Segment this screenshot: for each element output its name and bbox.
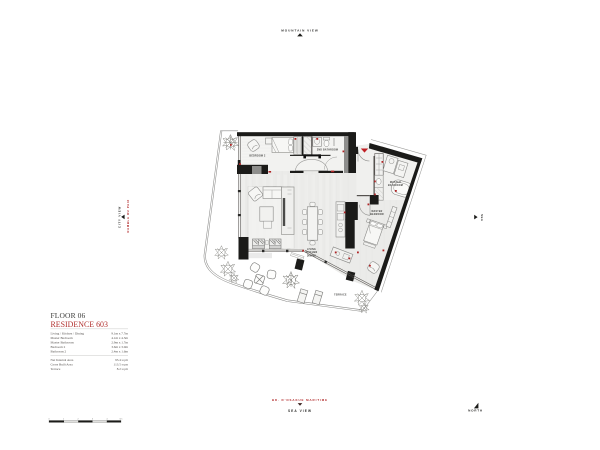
svg-text:Living / Kitchen / Dining: Living / Kitchen / Dining	[51, 331, 85, 335]
svg-text:MASTER: MASTER	[390, 181, 401, 184]
svg-text:SEA VIEW: SEA VIEW	[288, 409, 312, 413]
svg-text:RESIDENCE 603: RESIDENCE 603	[51, 320, 109, 329]
svg-text:BEDROOM 2: BEDROOM 2	[249, 155, 266, 157]
svg-text:BD. D’OSAKUE MARITIME: BD. D’OSAKUE MARITIME	[272, 398, 328, 402]
svg-text:CITY VIEW: CITY VIEW	[117, 206, 121, 228]
svg-text:FLOOR 06: FLOOR 06	[51, 311, 86, 320]
svg-text:BEDROOM: BEDROOM	[370, 214, 384, 216]
svg-text:5m: 5m	[119, 418, 122, 420]
svg-text:NORTH: NORTH	[468, 408, 483, 412]
svg-text:2.4m x 1.6m: 2.4m x 1.6m	[111, 349, 128, 353]
svg-text:TERRACE: TERRACE	[334, 293, 347, 296]
svg-text:Gross Built Area: Gross Built Area	[51, 362, 74, 366]
svg-text:2.9m x 1.7m: 2.9m x 1.7m	[111, 340, 128, 344]
svg-text:SEA: SEA	[480, 214, 484, 222]
svg-text:3.6m x 3.0m: 3.6m x 3.0m	[111, 345, 128, 349]
svg-text:8.2 sq m: 8.2 sq m	[117, 367, 129, 371]
svg-text:LIVING: LIVING	[307, 249, 316, 251]
svg-text:DINING: DINING	[307, 256, 316, 258]
svg-text:Bathroom 2: Bathroom 2	[51, 349, 67, 353]
svg-text:4.1m x 4.3m: 4.1m x 4.3m	[111, 336, 128, 340]
svg-text:RAMBLA DU PAIX: RAMBLA DU PAIX	[126, 199, 130, 232]
svg-text:Master Bedroom: Master Bedroom	[51, 336, 74, 340]
svg-text:Terrace: Terrace	[51, 367, 61, 371]
svg-text:MOUNTAIN VIEW: MOUNTAIN VIEW	[281, 29, 319, 33]
svg-text:KITCHEN: KITCHEN	[306, 252, 318, 254]
svg-text:9.1m x 7.7m: 9.1m x 7.7m	[111, 331, 128, 335]
svg-text:BATHROOM: BATHROOM	[388, 184, 403, 187]
svg-text:MASTER: MASTER	[372, 210, 383, 213]
svg-text:Net Internal Area: Net Internal Area	[51, 358, 74, 362]
svg-text:93.4 sq m: 93.4 sq m	[115, 358, 128, 362]
svg-text:2ND BATHROOM: 2ND BATHROOM	[317, 148, 338, 151]
svg-text:113.5 sq m: 113.5 sq m	[114, 362, 129, 366]
svg-text:Master Bathroom: Master Bathroom	[51, 340, 75, 344]
svg-text:Bedroom 2: Bedroom 2	[51, 345, 66, 349]
